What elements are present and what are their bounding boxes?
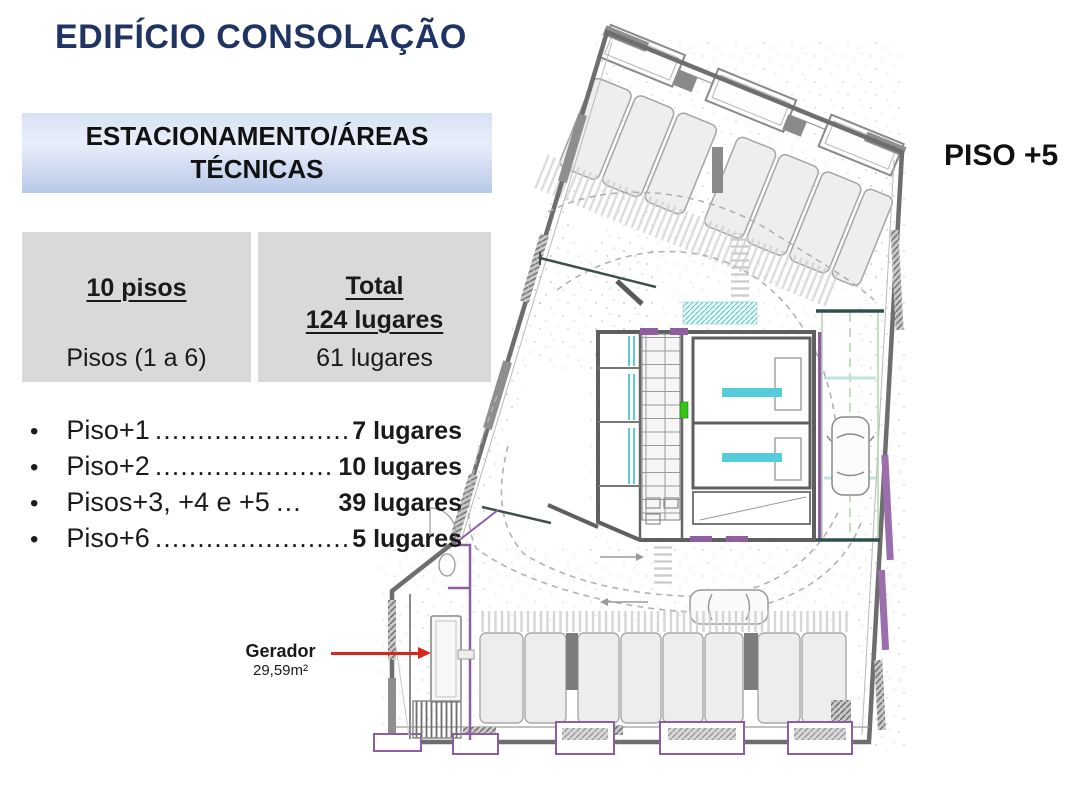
pillar xyxy=(744,633,758,690)
leader-dots: .............................. xyxy=(155,412,348,448)
elevator-bar xyxy=(722,388,782,397)
list-item: Piso+6 ................................ … xyxy=(30,520,462,556)
floors-heading: 10 pisos xyxy=(22,274,251,303)
elevator-bar xyxy=(722,453,782,462)
list-item: Pisos+3, +4 e +5 … 39 lugares xyxy=(30,484,462,520)
exit-marker xyxy=(680,402,688,418)
floor-places-list: Piso+1 .............................. 7 … xyxy=(30,412,462,556)
leader-dots: ................................ xyxy=(155,520,348,556)
floor-value: 5 lugares xyxy=(352,521,462,557)
leader-dots: .............................. xyxy=(155,448,334,484)
pillar xyxy=(712,147,723,193)
generator-label: Gerador xyxy=(228,641,333,662)
slide: EDIFÍCIO CONSOLAÇÃO ESTACIONAMENTO/ÁREAS… xyxy=(0,0,1080,810)
floor-label: Pisos+3, +4 e +5 xyxy=(66,484,269,520)
floor-plan-title: PISO +5 xyxy=(944,139,1058,173)
floor-value: 39 lugares xyxy=(338,485,462,521)
list-item: Piso+2 .............................. 10… xyxy=(30,448,462,484)
section-header-line2: TÉCNICAS xyxy=(191,153,324,186)
floor-label: Piso+6 xyxy=(66,520,149,556)
footing-hatch xyxy=(562,728,846,740)
generator-annotation: Gerador 29,59m² xyxy=(228,641,333,679)
floor-value: 10 lugares xyxy=(338,449,462,485)
generator-area: 29,59m² xyxy=(228,662,333,679)
staircase xyxy=(642,334,680,520)
floor-value: 7 lugares xyxy=(352,413,462,449)
elevator-shafts xyxy=(693,338,810,488)
generator-louver xyxy=(413,701,461,738)
car-icon xyxy=(827,417,874,495)
pillar xyxy=(566,633,578,690)
floor-label: Piso+1 xyxy=(66,412,149,448)
building-core xyxy=(598,302,822,542)
generator-arrow-icon xyxy=(331,652,419,655)
list-item: Piso+1 .............................. 7 … xyxy=(30,412,462,448)
floor-label: Piso+2 xyxy=(66,448,149,484)
leader-dots: … xyxy=(275,484,334,520)
summary-panel-floors: 10 pisos Pisos (1 a 6) xyxy=(22,232,251,382)
floors-row: Pisos (1 a 6) xyxy=(22,344,251,373)
floor-plan xyxy=(358,8,942,790)
